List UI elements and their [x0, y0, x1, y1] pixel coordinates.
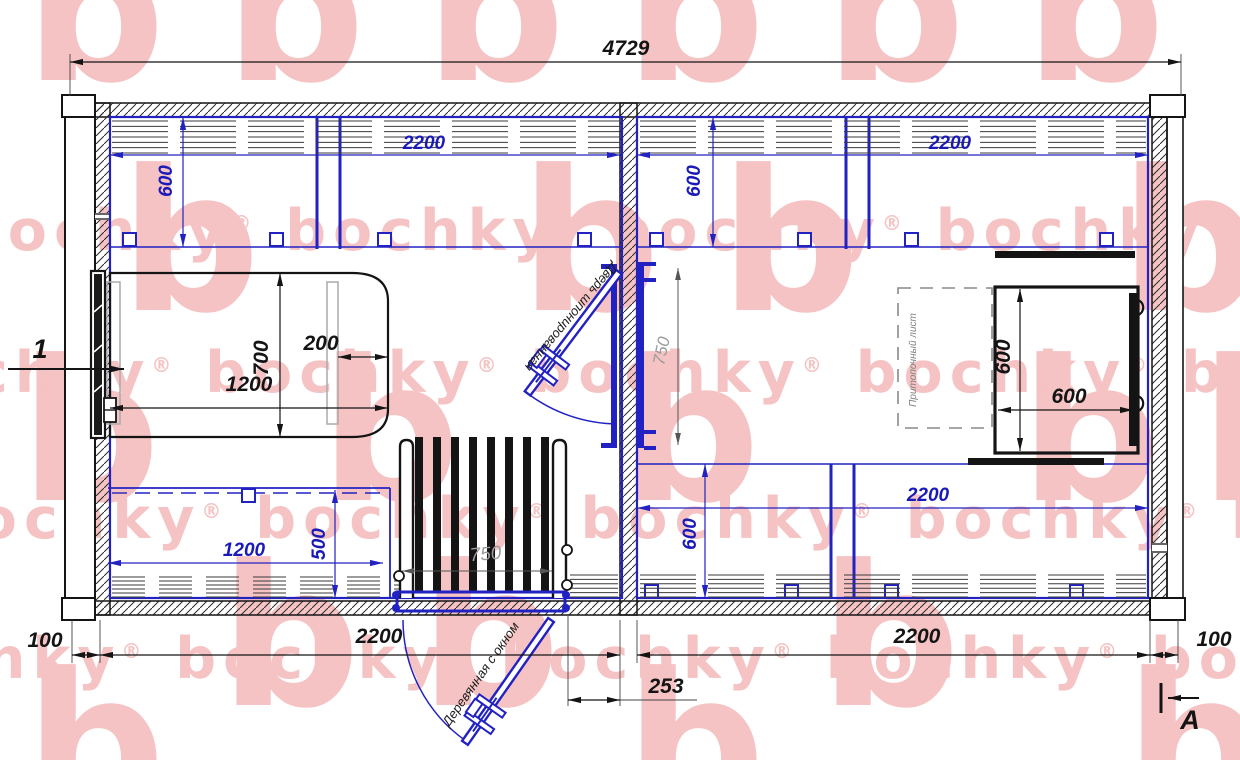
stove-floor-sheet-label: Притопочный лист	[908, 313, 919, 407]
dim-bed-depth: 700	[250, 340, 273, 375]
stove-square	[995, 287, 1138, 453]
dim-left-wall: 100	[27, 629, 62, 652]
dim-lower-left-bench: 1200	[223, 540, 266, 561]
bench-leg	[650, 233, 663, 246]
stove-area	[898, 251, 1143, 465]
wall-cap-bottom-left	[62, 598, 95, 620]
wall-cap-bottom-right	[1150, 598, 1185, 620]
dim-overall-width: 4729	[602, 37, 650, 60]
bench-leg	[885, 585, 898, 598]
drawing-stage: bbbbbbbbbbbbbbbbbbbbbbochky® bochky® boc…	[0, 0, 1240, 760]
dim-right-wall: 100	[1196, 628, 1231, 651]
dim-door-offset: 253	[647, 675, 683, 698]
section-marker-a: A	[1179, 705, 1200, 735]
bench-leg	[1100, 233, 1113, 246]
section-marker-1: 1	[32, 334, 47, 364]
dim-stove-width: 600	[992, 339, 1015, 374]
dim-bottom-right-room: 2200	[893, 625, 941, 648]
heater-guard-top	[995, 251, 1135, 258]
door-swing-arc	[528, 393, 618, 424]
dim-stove-depth: 600	[1051, 385, 1086, 408]
entry-deck	[394, 437, 572, 598]
wall-cap-top-left	[62, 95, 95, 117]
right-wall	[1152, 117, 1167, 615]
bench-leg	[578, 233, 591, 246]
dim-bottom-left-room: 2200	[355, 625, 403, 648]
wall-cap-top-right	[1150, 95, 1185, 117]
dim-lower-left-depth: 500	[309, 528, 330, 560]
bench-leg	[785, 585, 798, 598]
door-swing-arc	[403, 620, 466, 741]
bench-leg	[1070, 585, 1083, 598]
stove-back-panel	[1129, 293, 1138, 446]
bench-leg	[798, 233, 811, 246]
dim-left-bench-depth: 600	[156, 165, 177, 197]
bench-leg	[378, 233, 391, 246]
dim-middle-door-opening: 750	[649, 334, 674, 366]
right-outer-board	[1167, 117, 1183, 598]
heater-guard-bottom	[968, 458, 1104, 465]
dim-top-right-bench: 2200	[928, 133, 972, 154]
window-left	[91, 271, 116, 438]
bed	[107, 273, 388, 437]
bench-leg	[242, 489, 255, 502]
bench-leg	[270, 233, 283, 246]
dim-lower-right-bench: 2200	[906, 485, 950, 506]
floor-plan-svg: 4729220022006006007002001200750750120050…	[0, 0, 1240, 760]
deck-rail-right	[553, 440, 566, 598]
dim-lower-right-depth: 600	[680, 518, 701, 550]
dim-bed-length: 1200	[226, 373, 273, 396]
dim-top-left-bench: 2200	[402, 133, 446, 154]
middle-door-label: Дверь шпонированная	[522, 259, 623, 375]
bench-leg	[645, 585, 658, 598]
hinge-icon	[394, 571, 404, 581]
dim-bed-edge: 200	[302, 332, 338, 355]
dim-entry-opening: 750	[469, 543, 503, 567]
dim-right-bench-depth: 600	[684, 165, 705, 197]
bench-leg	[123, 233, 136, 246]
hinge-icon	[562, 545, 572, 555]
door-jamb-right	[638, 262, 644, 448]
door-jamb-left	[611, 264, 617, 448]
bench-leg	[905, 233, 918, 246]
hinge-icon	[562, 580, 572, 590]
right-room-outline	[637, 117, 1148, 598]
